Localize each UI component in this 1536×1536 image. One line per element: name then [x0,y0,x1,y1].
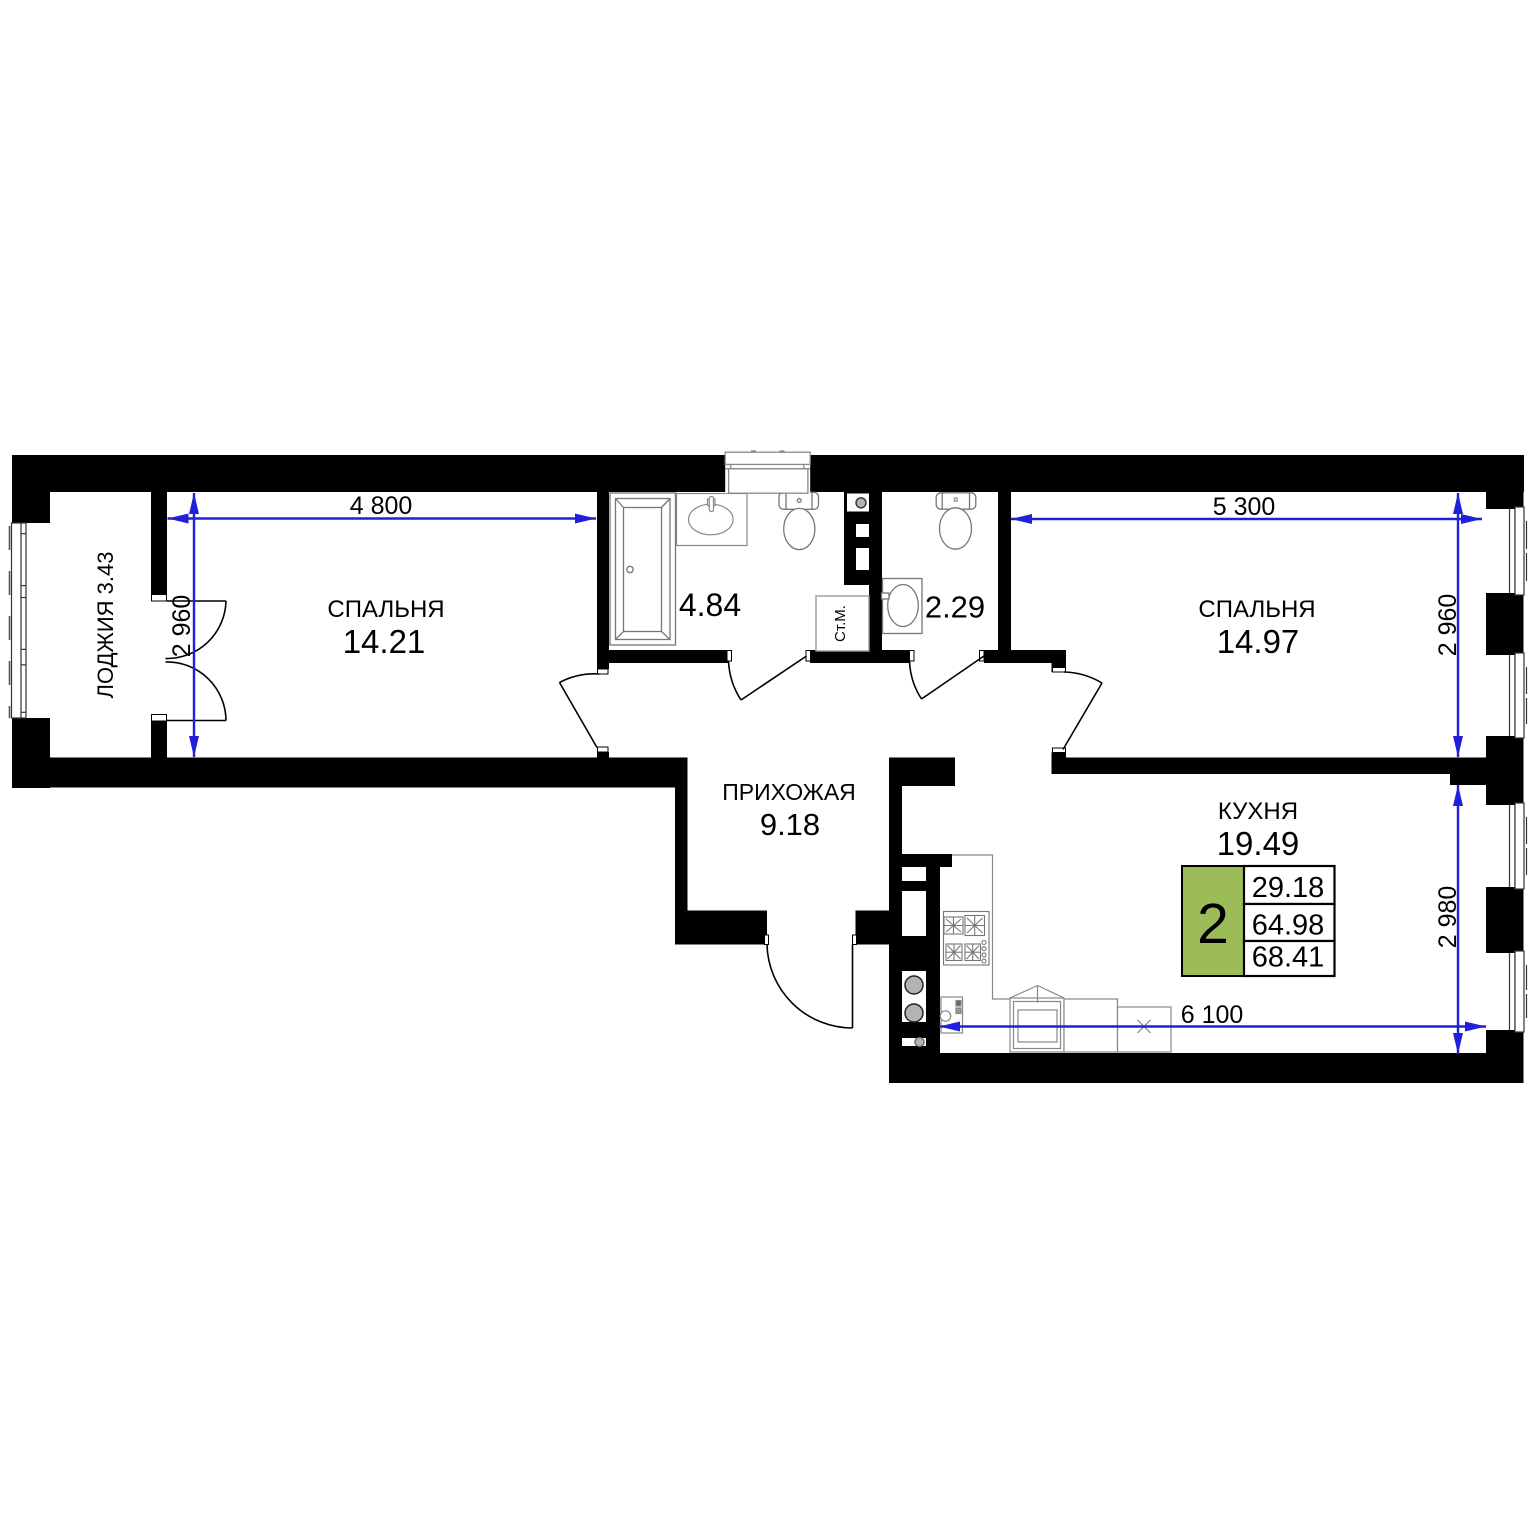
svg-text:2.29: 2.29 [925,590,985,625]
svg-text:2: 2 [1197,892,1229,956]
svg-text:5 300: 5 300 [1213,493,1276,521]
svg-text:4.84: 4.84 [679,587,741,623]
svg-text:19.49: 19.49 [1217,825,1300,862]
svg-text:ПРИХОЖАЯ: ПРИХОЖАЯ [722,779,856,805]
svg-text:Ст.М.: Ст.М. [832,605,849,642]
svg-text:29.18: 29.18 [1252,872,1325,904]
svg-text:ЛОДЖИЯ 3.43: ЛОДЖИЯ 3.43 [93,552,118,699]
svg-text:9.18: 9.18 [760,807,820,842]
svg-text:14.97: 14.97 [1217,623,1300,660]
svg-text:КУХНЯ: КУХНЯ [1218,798,1298,825]
svg-text:2 960: 2 960 [1434,594,1462,657]
svg-text:2 980: 2 980 [1434,886,1462,949]
svg-text:6 100: 6 100 [1181,1001,1244,1029]
svg-text:68.41: 68.41 [1252,942,1325,974]
svg-text:14.21: 14.21 [343,623,426,660]
svg-text:СПАЛЬНЯ: СПАЛЬНЯ [327,596,444,623]
svg-text:СПАЛЬНЯ: СПАЛЬНЯ [1198,596,1315,623]
svg-text:64.98: 64.98 [1252,910,1325,942]
svg-text:2 960: 2 960 [168,595,196,658]
svg-text:4 800: 4 800 [350,492,413,520]
